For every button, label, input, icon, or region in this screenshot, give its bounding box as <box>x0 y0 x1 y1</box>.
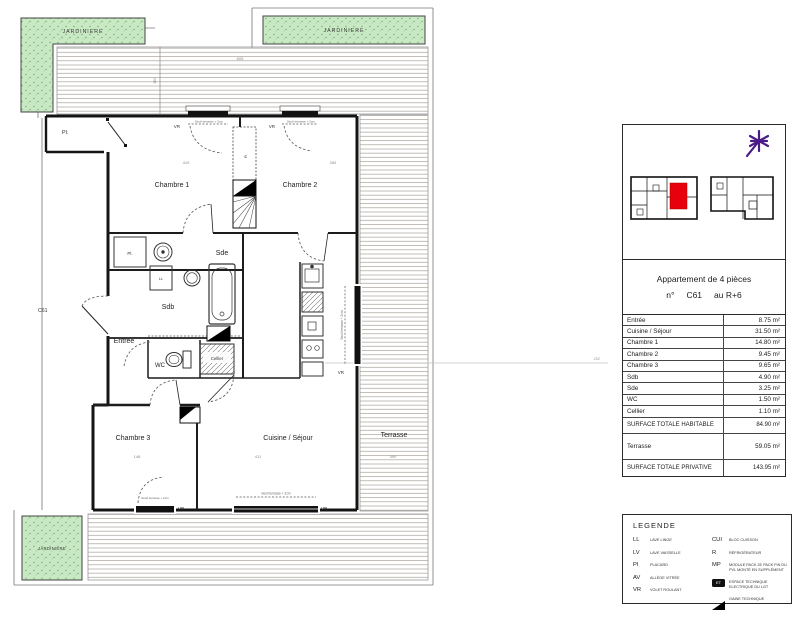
window-sejour-right: Seuil terrasse + 2cm VR <box>338 284 362 375</box>
table-row: WC 1.50 m² <box>623 395 785 406</box>
dim-deck-depth: 160 <box>152 77 157 84</box>
legend-label: VOLET ROULANT <box>650 587 708 593</box>
gaine-technique-icon <box>712 597 725 615</box>
row-value: 3.25 m² <box>724 383 785 393</box>
toilet <box>166 351 191 368</box>
key-plan-building-right <box>711 177 773 219</box>
dim-terrace-top: 605 <box>237 56 244 61</box>
legend-item: MP MODULE PACK 2E PACK FIN DU PVL MONTÉ … <box>712 562 791 572</box>
bathtub <box>209 264 235 324</box>
legend-item: R RÉFRIGÉRATEUR <box>712 550 791 556</box>
row-value: 14.80 m² <box>724 338 785 348</box>
legend-item: PI PLACARD <box>633 562 712 568</box>
apartment-walls <box>46 116 357 510</box>
jardiniere-top-middle: JARDINIERE <box>263 16 425 44</box>
legend-abbr: AV <box>633 575 650 581</box>
refrigerateur <box>302 316 323 336</box>
room-label-cellier: Cellier <box>211 356 224 361</box>
lave-vaisselle <box>302 292 323 312</box>
seuil-note: Seuil terrasse + 2cm <box>141 496 169 500</box>
unit-door-label: C61 <box>38 308 48 314</box>
row-value: 9.65 m² <box>724 361 785 371</box>
dim-chambre3: 148 <box>134 454 141 459</box>
floorplan-sheet: { "plan": { "jardiniere_label": "JARDINI… <box>0 0 795 595</box>
bloc-cuisson <box>302 340 323 358</box>
apartment-type: Appartement de 4 pièces <box>657 274 752 284</box>
row-label: Chambre 3 <box>623 361 724 371</box>
surface-table: Entrée 8.75 m² Cuisine / Séjour 31.50 m²… <box>623 315 785 476</box>
dim-leader: 252 <box>594 357 600 361</box>
legend-abbr: R <box>712 550 729 556</box>
sde-fixtures: Pl. <box>114 237 172 267</box>
apartment-info-panel: Appartement de 4 pièces n° C61 au R+6 En… <box>622 124 786 477</box>
row-label: Sdb <box>623 372 724 382</box>
legend-label: ESPACE TECHNIQUE ELECTRIQUE DU LGT <box>729 579 787 589</box>
table-row: Sdb 4.90 m² <box>623 372 785 383</box>
legend-label: ALLÈGE VITRÉE <box>650 575 708 581</box>
key-plan <box>623 125 783 257</box>
seuil-note: Seuil terrasse + 2cm <box>195 120 224 124</box>
table-row: Chambre 1 14.80 m² <box>623 338 785 349</box>
apartment-title-block: Appartement de 4 pièces n° C61 au R+6 <box>623 260 785 315</box>
espace-technique-icon <box>180 407 200 423</box>
jardiniere-bottom-left: JARDINIERE <box>22 516 82 580</box>
surface-habitable-row: SURFACE TOTALE HABITABLE 84.90 m² <box>623 418 785 434</box>
legend-abbr: MP <box>712 562 729 568</box>
kitchen-units <box>302 264 323 376</box>
jardiniere-label: JARDINIERE <box>38 546 66 551</box>
row-label: Entrée <box>623 315 724 325</box>
row-value: 59.05 m² <box>724 434 785 459</box>
seuil-note: Seuil terrasse + 2cm <box>261 492 290 496</box>
espace-technique-icon: ET <box>712 579 725 587</box>
room-label-chambre2: Chambre 2 <box>283 182 318 189</box>
legend-abbr: VR <box>633 587 650 593</box>
unit-number: C61 <box>686 290 702 300</box>
room-labels: Chambre 1 Chambre 2 Sde Sdb Entrée WC Ch… <box>114 182 318 442</box>
legend-title: LEGENDE <box>633 521 791 530</box>
seuil-note: Seuil terrasse + 2cm <box>340 310 344 339</box>
row-label: Cuisine / Séjour <box>623 326 724 336</box>
unit-highlight <box>670 183 687 209</box>
row-value: 9.45 m² <box>724 349 785 359</box>
row-value: 1.50 m² <box>724 395 785 405</box>
dim-chambre1: 419 <box>183 160 190 165</box>
legend-label: RÉFRIGÉRATEUR <box>729 550 787 556</box>
table-row: Cuisine / Séjour 31.50 m² <box>623 326 785 337</box>
row-label: Sde <box>623 383 724 393</box>
key-plan-building-left <box>631 177 697 219</box>
row-label: Chambre 2 <box>623 349 724 359</box>
table-row: Sde 3.25 m² <box>623 383 785 394</box>
row-label: WC <box>623 395 724 405</box>
legend-label: BLOC CUISSON <box>729 537 787 543</box>
room-label-chambre1: Chambre 1 <box>155 182 190 189</box>
location-thumbnails <box>623 125 785 260</box>
room-label-sde: Sde <box>216 250 229 257</box>
table-row: Cellier 1.10 m² <box>623 406 785 417</box>
legend-panel: LEGENDE LL LAVE LINGE LV LAVE VAISSELLE … <box>622 514 792 604</box>
north-star-icon <box>747 131 768 156</box>
floor-level: au R+6 <box>714 290 742 300</box>
numero-prefix: n° <box>666 290 674 300</box>
window-chambre3: VR Seuil terrasse + 2cm <box>134 477 185 514</box>
cellier-room: Cellier <box>200 344 234 374</box>
entry-door: C61 <box>38 296 112 336</box>
row-value: 84.90 m² <box>724 418 785 433</box>
room-label-wc: WC <box>155 363 166 369</box>
vr-label: VR <box>321 506 328 511</box>
jardiniere-label: JARDINIERE <box>324 28 365 34</box>
room-label-terrasse: Terrasse <box>381 432 408 439</box>
row-label: Terrasse <box>623 434 724 459</box>
legend-abbr: LV <box>633 550 650 556</box>
row-value: 4.90 m² <box>724 372 785 382</box>
room-label-cuisine: Cuisine / Séjour <box>263 435 313 442</box>
row-label: Cellier <box>623 406 724 416</box>
vr-label: VR <box>178 506 185 511</box>
lave-linge-mark: LL <box>159 277 163 281</box>
legend-item: GAINE TECHNIQUE <box>712 596 791 615</box>
gaine-technique-icon <box>207 326 230 341</box>
room-label-entree: Entrée <box>114 338 135 345</box>
row-value: 143.95 m² <box>724 460 785 476</box>
bay-window-cuisine: VR Seuil terrasse + 2cm <box>232 492 328 515</box>
terrasse-row: Terrasse 59.05 m² <box>623 434 785 460</box>
room-label-chambre3: Chambre 3 <box>116 435 151 442</box>
table-row: Entrée 8.75 m² <box>623 315 785 326</box>
legend-label: LAVE VAISSELLE <box>650 550 708 556</box>
legend-item: CUI BLOC CUISSON <box>712 537 791 543</box>
dim-cuisine: 411 <box>255 454 262 459</box>
dim-terrasse: 390 <box>390 454 397 459</box>
closet-label: Pl. <box>62 130 69 136</box>
placard-label: Pl. <box>244 154 248 158</box>
gaine-technique-icon <box>233 180 256 196</box>
legend-item: LV LAVE VAISSELLE <box>633 550 712 556</box>
module-pack <box>302 362 323 376</box>
table-row: Chambre 3 9.65 m² <box>623 361 785 372</box>
vr-label: VR <box>174 124 181 129</box>
legend-item: ET ESPACE TECHNIQUE ELECTRIQUE DU LGT <box>712 579 791 589</box>
legend-item: VR VOLET ROULANT <box>633 587 712 593</box>
vr-label: VR <box>338 370 345 375</box>
espace-technique-icon <box>233 196 256 228</box>
jardiniere-label: JARDINIERE <box>63 29 104 35</box>
legend-abbr: PI <box>633 562 650 568</box>
row-label: SURFACE TOTALE HABITABLE <box>623 418 724 433</box>
row-value: 1.10 m² <box>724 406 785 416</box>
closet-label: Pl. <box>127 251 132 256</box>
row-value: 31.50 m² <box>724 326 785 336</box>
technical-column: Pl. <box>233 127 256 228</box>
legend-label: PLACARD <box>650 562 708 568</box>
door-arcs <box>124 204 328 405</box>
surface-privative-row: SURFACE TOTALE PRIVATIVE 143.95 m² <box>623 460 785 476</box>
legend-abbr: CUI <box>712 537 729 543</box>
row-label: Chambre 1 <box>623 338 724 348</box>
table-row: Chambre 2 9.45 m² <box>623 349 785 360</box>
kitchen-sink <box>302 264 323 288</box>
legend-item: LL LAVE LINGE <box>633 537 712 543</box>
legend-item: AV ALLÈGE VITRÉE <box>633 575 712 581</box>
legend-label: GAINE TECHNIQUE <box>729 596 787 602</box>
legend-abbr: LL <box>633 537 650 543</box>
legend-label: MODULE PACK 2E PACK FIN DU PVL MONTÉ EN … <box>729 562 787 572</box>
sdb-fixtures: LL <box>148 264 243 336</box>
legend-label: LAVE LINGE <box>650 537 708 543</box>
vr-label: VR <box>269 124 276 129</box>
apartment-number-line: n° C61 au R+6 <box>666 290 741 300</box>
floor-plan-drawing: JARDINIERE JARDINIERE JARDINIERE 605 160… <box>0 0 615 595</box>
dim-chambre2: 284 <box>330 160 337 165</box>
entry-closet: Pl. <box>62 118 127 147</box>
row-label: SURFACE TOTALE PRIVATIVE <box>623 460 724 476</box>
row-value: 8.75 m² <box>724 315 785 325</box>
seuil-note: Seuil terrasse + 2cm <box>287 120 316 124</box>
interior-walls <box>93 116 357 510</box>
room-label-sdb: Sdb <box>162 304 175 311</box>
